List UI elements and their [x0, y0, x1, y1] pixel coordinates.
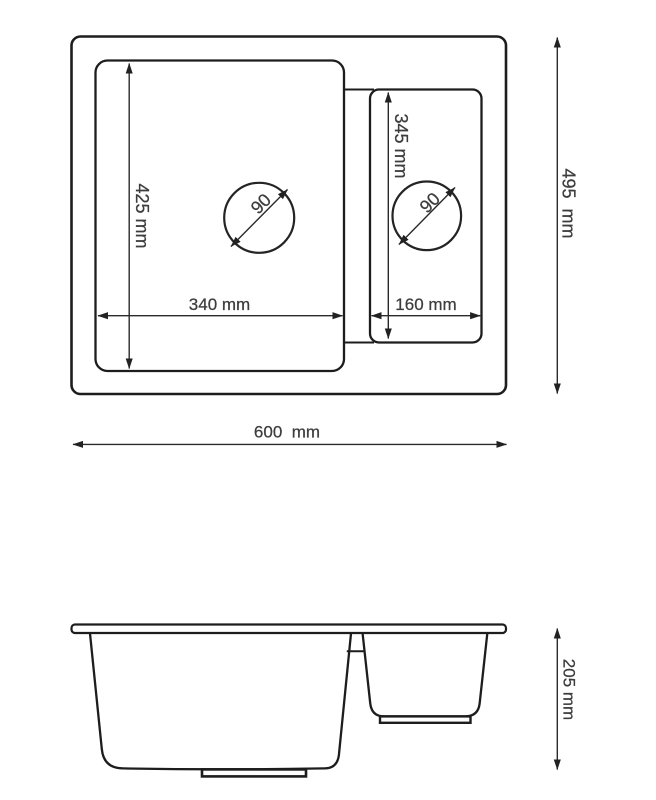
svg-text:345 mm: 345 mm: [391, 113, 411, 178]
svg-text:425 mm: 425 mm: [132, 183, 152, 248]
svg-text:495 mm: 495 mm: [559, 168, 579, 238]
svg-text:340 mm: 340 mm: [189, 295, 250, 314]
svg-text:205 mm: 205 mm: [560, 659, 579, 720]
svg-text:160 mm: 160 mm: [395, 295, 456, 314]
svg-text:600 mm: 600 mm: [254, 423, 320, 442]
